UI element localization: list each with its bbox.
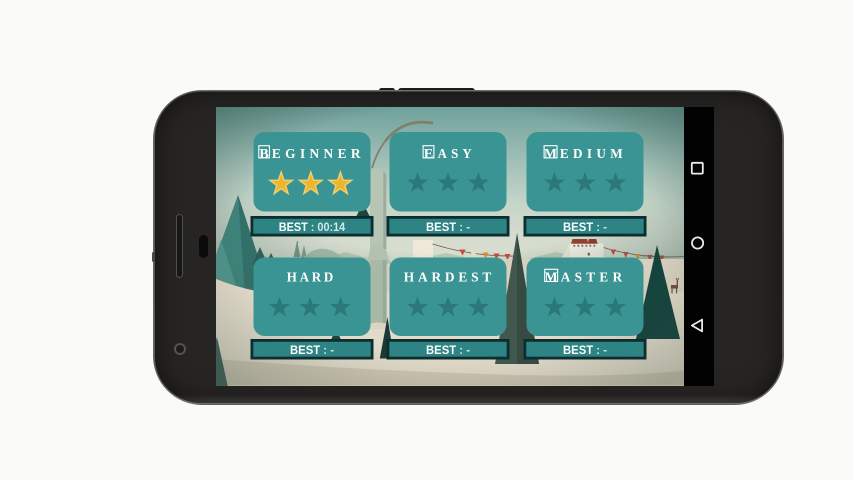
svg-text:BEST : -: BEST : - <box>426 220 470 234</box>
svg-text:EGINNER: EGINNER <box>271 147 364 162</box>
svg-text:EDIUM: EDIUM <box>559 147 626 162</box>
svg-text:BEST : -: BEST : - <box>426 343 470 357</box>
svg-text:BEST : -: BEST : - <box>562 220 606 234</box>
svg-text:HARDEST: HARDEST <box>403 270 494 285</box>
svg-text:ASY: ASY <box>437 147 475 162</box>
svg-text:BEST : -: BEST : - <box>562 343 606 357</box>
svg-text:B: B <box>259 147 268 162</box>
svg-text:M: M <box>544 269 557 284</box>
svg-text:HARD: HARD <box>286 270 335 285</box>
svg-text:BEST : -: BEST : - <box>290 343 334 357</box>
svg-text:BEST : 00:14: BEST : 00:14 <box>278 220 345 234</box>
svg-text:E: E <box>423 147 432 162</box>
svg-text:ASTER: ASTER <box>560 270 626 285</box>
svg-text:M: M <box>544 146 557 161</box>
